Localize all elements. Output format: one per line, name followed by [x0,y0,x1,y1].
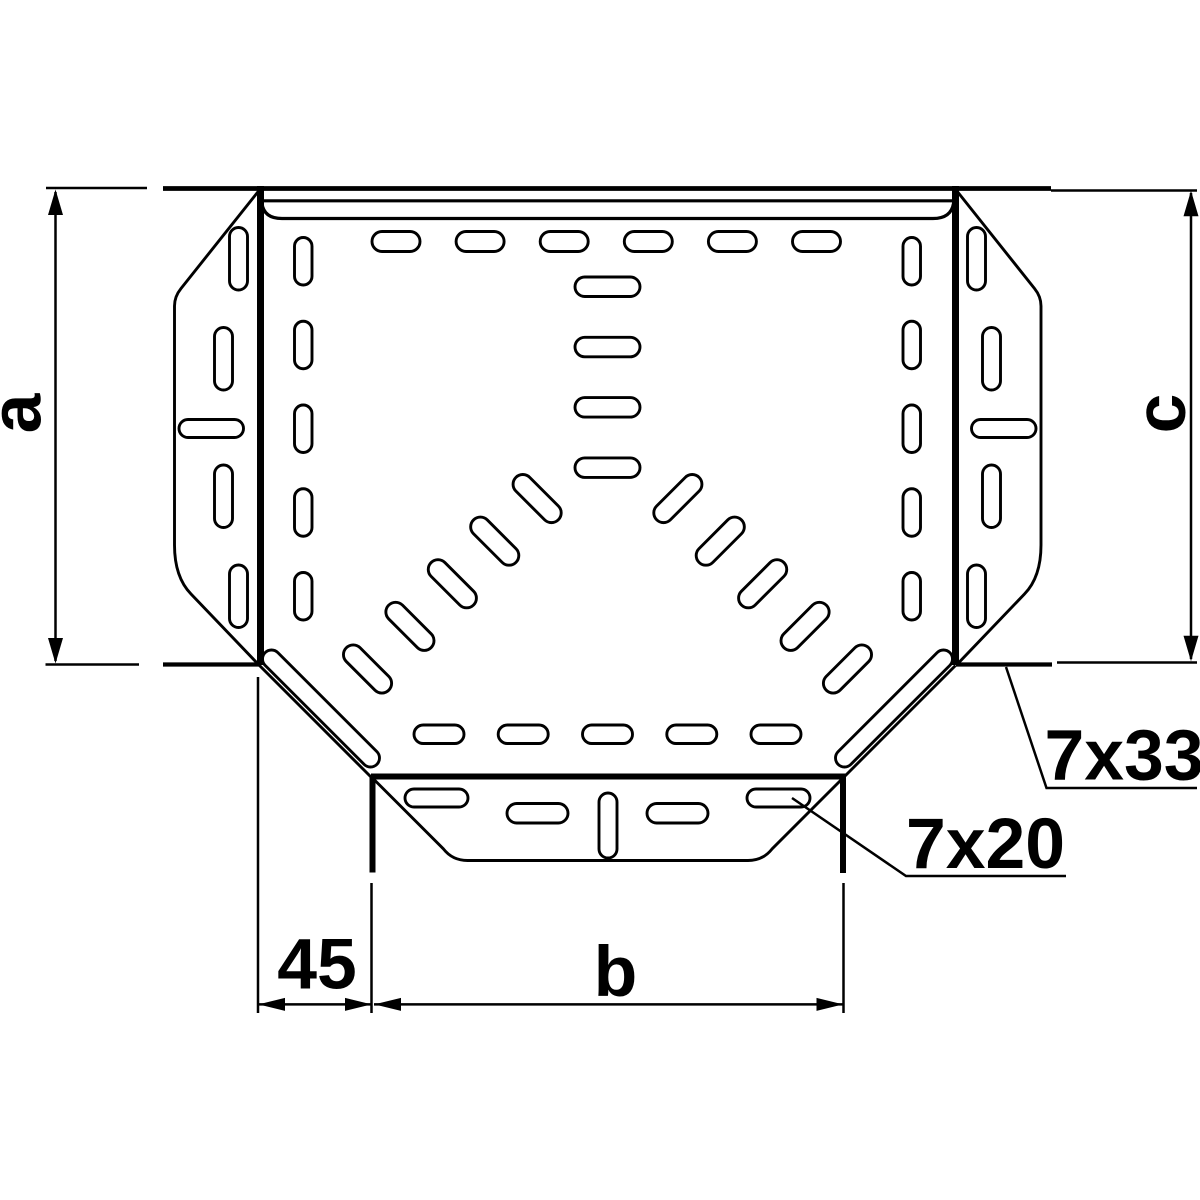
svg-text:7x33: 7x33 [1044,716,1200,796]
svg-text:c: c [1121,394,1200,434]
svg-text:7x20: 7x20 [906,804,1065,884]
svg-text:45: 45 [277,925,357,1005]
svg-text:a: a [0,392,57,433]
svg-text:b: b [594,932,638,1012]
